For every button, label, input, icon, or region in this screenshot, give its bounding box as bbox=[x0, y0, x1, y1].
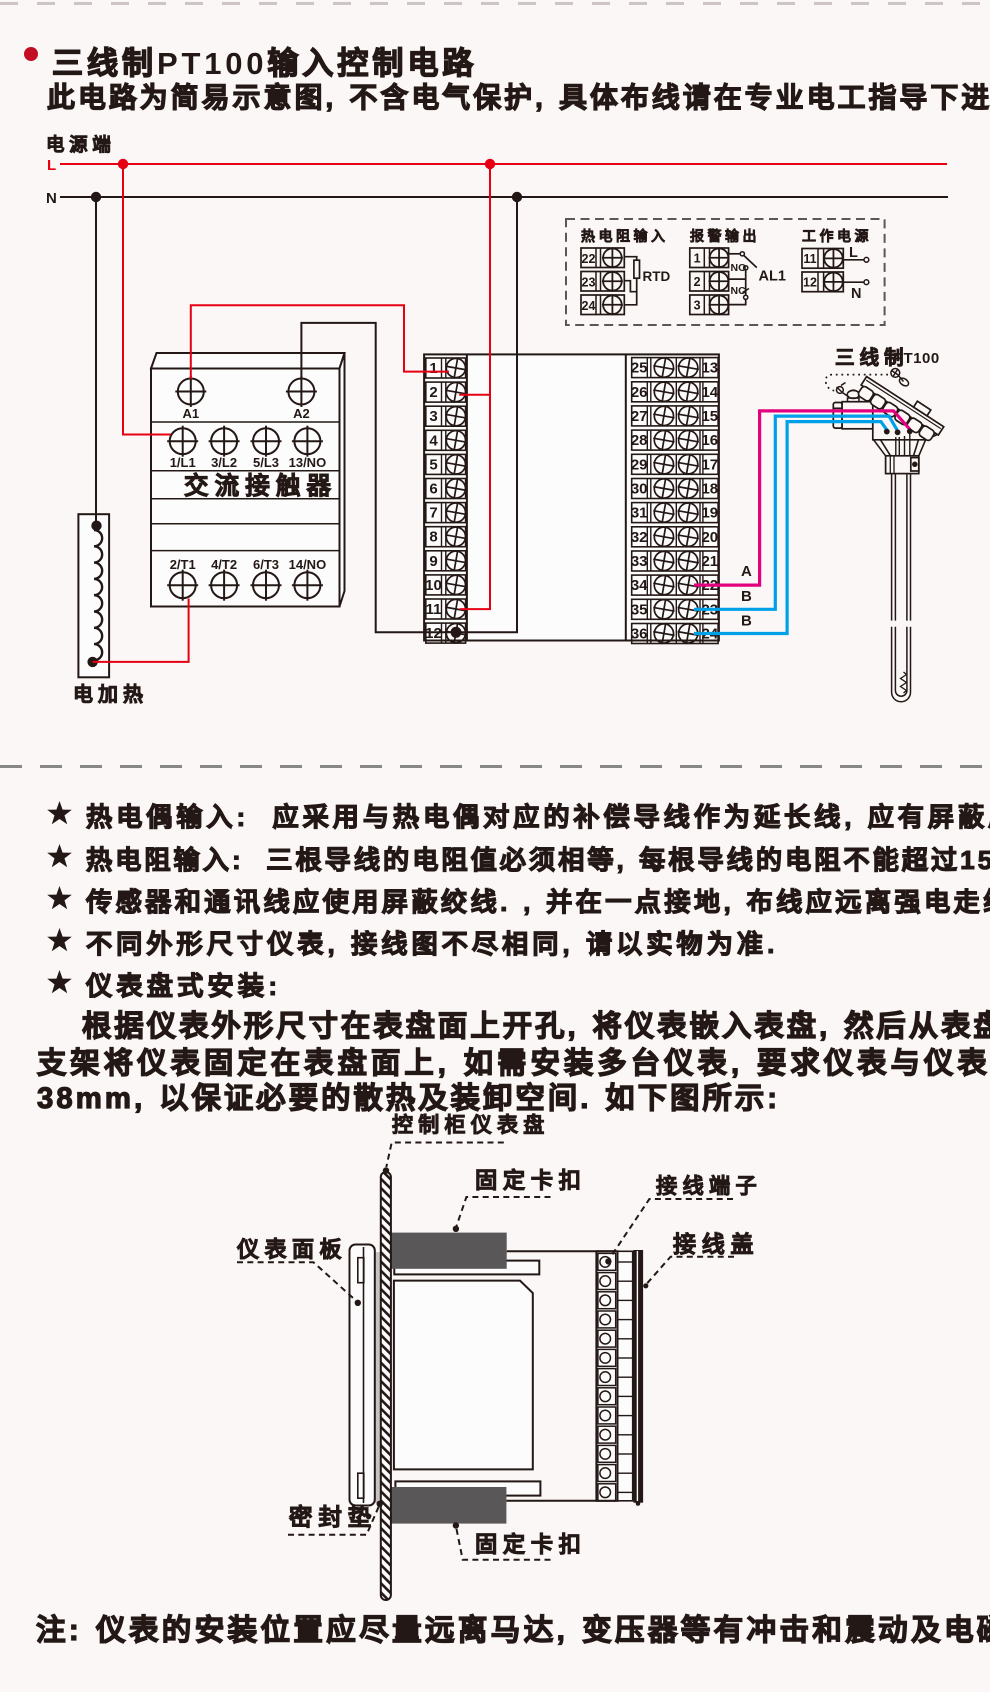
svg-text:16: 16 bbox=[701, 432, 718, 449]
svg-text:工作电源: 工作电源 bbox=[802, 228, 872, 244]
svg-text:32: 32 bbox=[631, 529, 648, 546]
svg-text:8: 8 bbox=[429, 529, 437, 546]
svg-text:35: 35 bbox=[631, 601, 648, 618]
svg-text:A2: A2 bbox=[293, 406, 310, 421]
svg-text:24: 24 bbox=[582, 299, 596, 313]
svg-text:2: 2 bbox=[429, 384, 437, 401]
svg-text:17: 17 bbox=[701, 456, 718, 473]
svg-text:PT100: PT100 bbox=[893, 350, 940, 367]
svg-text:34: 34 bbox=[631, 577, 648, 594]
svg-text:19: 19 bbox=[701, 505, 718, 522]
svg-text:7: 7 bbox=[429, 505, 437, 522]
svg-text:18: 18 bbox=[701, 481, 718, 498]
svg-text:9: 9 bbox=[429, 553, 437, 570]
svg-text:电源端: 电源端 bbox=[46, 134, 115, 155]
svg-text:接线端子: 接线端子 bbox=[656, 1173, 762, 1198]
svg-text:仪表面板: 仪表面板 bbox=[236, 1237, 347, 1262]
svg-text:12: 12 bbox=[425, 625, 442, 642]
svg-text:报警输出: 报警输出 bbox=[690, 228, 760, 244]
svg-text:B: B bbox=[741, 588, 752, 605]
svg-text:3: 3 bbox=[694, 298, 701, 312]
svg-text:23: 23 bbox=[582, 275, 596, 289]
svg-text:1/L1: 1/L1 bbox=[170, 455, 196, 470]
svg-text:N: N bbox=[851, 286, 861, 302]
svg-text:12: 12 bbox=[803, 276, 817, 290]
svg-text:接线盖: 接线盖 bbox=[673, 1231, 759, 1257]
svg-text:密封垫: 密封垫 bbox=[289, 1503, 377, 1530]
svg-text:5/L3: 5/L3 bbox=[253, 455, 279, 470]
svg-text:36: 36 bbox=[631, 626, 648, 643]
svg-text:1: 1 bbox=[429, 360, 437, 377]
svg-text:3/L2: 3/L2 bbox=[211, 455, 237, 470]
svg-text:2: 2 bbox=[694, 275, 701, 289]
svg-text:4: 4 bbox=[429, 432, 438, 449]
svg-text:14: 14 bbox=[701, 384, 718, 401]
svg-text:控制柜仪表盘: 控制柜仪表盘 bbox=[392, 1113, 550, 1137]
svg-text:11: 11 bbox=[426, 601, 442, 618]
svg-text:N: N bbox=[46, 190, 57, 207]
svg-text:10: 10 bbox=[425, 577, 442, 594]
svg-text:13/NO: 13/NO bbox=[289, 455, 327, 470]
svg-text:26: 26 bbox=[631, 384, 648, 401]
svg-text:6: 6 bbox=[429, 481, 437, 498]
svg-text:电加热: 电加热 bbox=[73, 683, 148, 706]
svg-text:5: 5 bbox=[429, 456, 437, 473]
svg-text:A1: A1 bbox=[182, 406, 199, 421]
svg-text:13: 13 bbox=[701, 360, 718, 377]
svg-text:11: 11 bbox=[803, 252, 816, 266]
svg-text:20: 20 bbox=[701, 529, 718, 546]
svg-text:固定卡扣: 固定卡扣 bbox=[475, 1531, 587, 1557]
svg-text:B: B bbox=[741, 613, 752, 630]
svg-text:27: 27 bbox=[631, 408, 648, 425]
svg-text:L: L bbox=[849, 245, 858, 261]
svg-text:交流接触器: 交流接触器 bbox=[184, 471, 337, 500]
svg-text:33: 33 bbox=[631, 553, 648, 570]
svg-text:31: 31 bbox=[631, 505, 648, 522]
svg-text:22: 22 bbox=[582, 252, 596, 266]
svg-text:15: 15 bbox=[701, 408, 718, 425]
svg-text:25: 25 bbox=[631, 360, 648, 377]
svg-text:固定卡扣: 固定卡扣 bbox=[475, 1167, 587, 1193]
svg-text:1: 1 bbox=[694, 251, 701, 265]
svg-text:L: L bbox=[47, 157, 56, 174]
svg-text:29: 29 bbox=[631, 456, 648, 473]
svg-text:AL1: AL1 bbox=[759, 269, 786, 285]
svg-text:3: 3 bbox=[429, 408, 437, 425]
svg-text:30: 30 bbox=[631, 481, 648, 498]
svg-text:热电阻输入: 热电阻输入 bbox=[581, 228, 669, 244]
svg-text:28: 28 bbox=[631, 432, 648, 449]
svg-text:A: A bbox=[741, 563, 752, 580]
svg-text:RTD: RTD bbox=[643, 269, 671, 284]
svg-text:21: 21 bbox=[701, 553, 718, 570]
